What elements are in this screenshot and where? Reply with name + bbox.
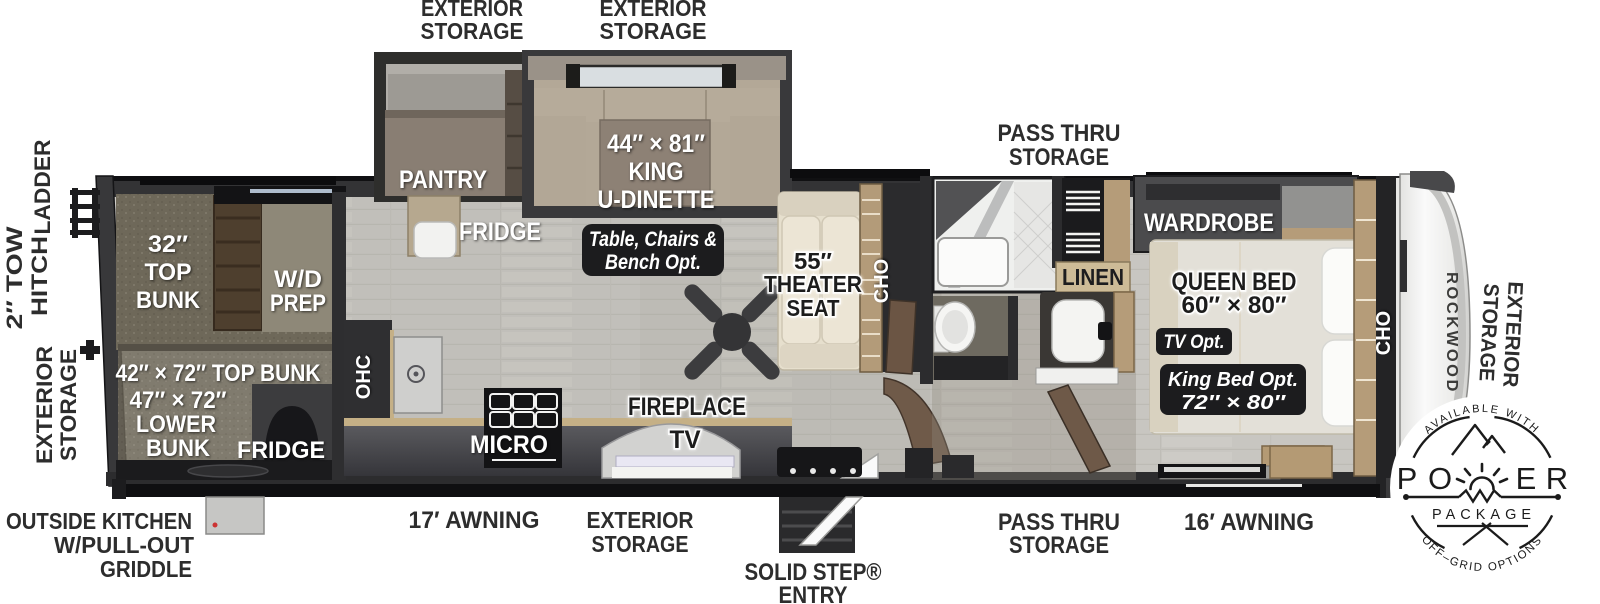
svg-text:CHO: CHO <box>1373 311 1395 355</box>
svg-text:EXTERIOR: EXTERIOR <box>587 507 694 533</box>
svg-text:2″ TOW: 2″ TOW <box>2 226 27 329</box>
svg-text:O: O <box>1428 461 1452 496</box>
svg-text:STORAGE: STORAGE <box>600 18 707 44</box>
svg-text:P: P <box>1397 461 1418 496</box>
svg-text:32″: 32″ <box>148 231 189 258</box>
svg-text:STORAGE: STORAGE <box>421 18 524 44</box>
svg-text:LADDER: LADDER <box>30 139 55 234</box>
svg-text:FRIDGE: FRIDGE <box>459 218 541 246</box>
svg-text:W/PULL-OUT: W/PULL-OUT <box>54 532 194 558</box>
svg-text:FIREPLACE: FIREPLACE <box>628 393 746 421</box>
svg-text:LOWER: LOWER <box>136 411 216 438</box>
svg-text:GRIDDLE: GRIDDLE <box>100 556 192 582</box>
svg-text:STORAGE: STORAGE <box>1009 532 1109 559</box>
svg-text:STORAGE: STORAGE <box>56 349 81 461</box>
svg-text:R: R <box>1546 461 1568 496</box>
svg-text:W/D: W/D <box>274 266 322 293</box>
svg-text:BUNK: BUNK <box>136 287 201 314</box>
svg-text:ROCKWOOD: ROCKWOOD <box>1443 272 1460 394</box>
svg-text:16′ AWNING: 16′ AWNING <box>1184 509 1314 536</box>
svg-text:PREP: PREP <box>270 290 326 317</box>
svg-text:Bench Opt.: Bench Opt. <box>605 251 701 274</box>
svg-text:E: E <box>1516 461 1537 496</box>
svg-text:MICRO: MICRO <box>470 431 548 459</box>
svg-text:OHC: OHC <box>353 355 375 399</box>
svg-text:PASS THRU: PASS THRU <box>998 120 1121 147</box>
svg-text:STORAGE: STORAGE <box>1009 144 1109 171</box>
svg-text:STORAGE: STORAGE <box>592 531 689 557</box>
svg-text:42″ × 72″ TOP BUNK: 42″ × 72″ TOP BUNK <box>116 360 322 387</box>
svg-text:ENTRY: ENTRY <box>779 582 848 604</box>
svg-text:CHO: CHO <box>871 259 893 303</box>
svg-text:TV: TV <box>670 426 701 454</box>
svg-text:47″ × 72″: 47″ × 72″ <box>130 387 227 414</box>
svg-text:BUNK: BUNK <box>146 435 211 462</box>
svg-text:FRIDGE: FRIDGE <box>237 437 325 464</box>
svg-text:PACKAGE: PACKAGE <box>1432 507 1536 523</box>
svg-text:72″ × 80″: 72″ × 80″ <box>1181 392 1287 414</box>
svg-text:Table, Chairs &: Table, Chairs & <box>589 228 717 251</box>
svg-text:KING: KING <box>629 158 684 186</box>
svg-text:EXTERIOR: EXTERIOR <box>32 346 57 464</box>
svg-text:U-DINETTE: U-DINETTE <box>598 186 715 214</box>
svg-text:TV Opt.: TV Opt. <box>1164 332 1225 353</box>
svg-text:60″ × 80″: 60″ × 80″ <box>1182 292 1288 319</box>
svg-text:TOP: TOP <box>145 259 192 286</box>
svg-text:WARDROBE: WARDROBE <box>1144 209 1274 237</box>
svg-text:OUTSIDE KITCHEN: OUTSIDE KITCHEN <box>6 508 192 534</box>
svg-text:SEAT: SEAT <box>787 295 840 321</box>
svg-text:17′ AWNING: 17′ AWNING <box>409 507 540 534</box>
svg-text:PANTRY: PANTRY <box>399 166 487 194</box>
svg-text:King Bed Opt.: King Bed Opt. <box>1168 369 1298 391</box>
svg-text:44″ × 81″: 44″ × 81″ <box>607 130 705 158</box>
svg-text:LINEN: LINEN <box>1062 264 1124 290</box>
svg-text:HITCH: HITCH <box>27 236 52 316</box>
svg-text:THEATER: THEATER <box>764 271 862 297</box>
